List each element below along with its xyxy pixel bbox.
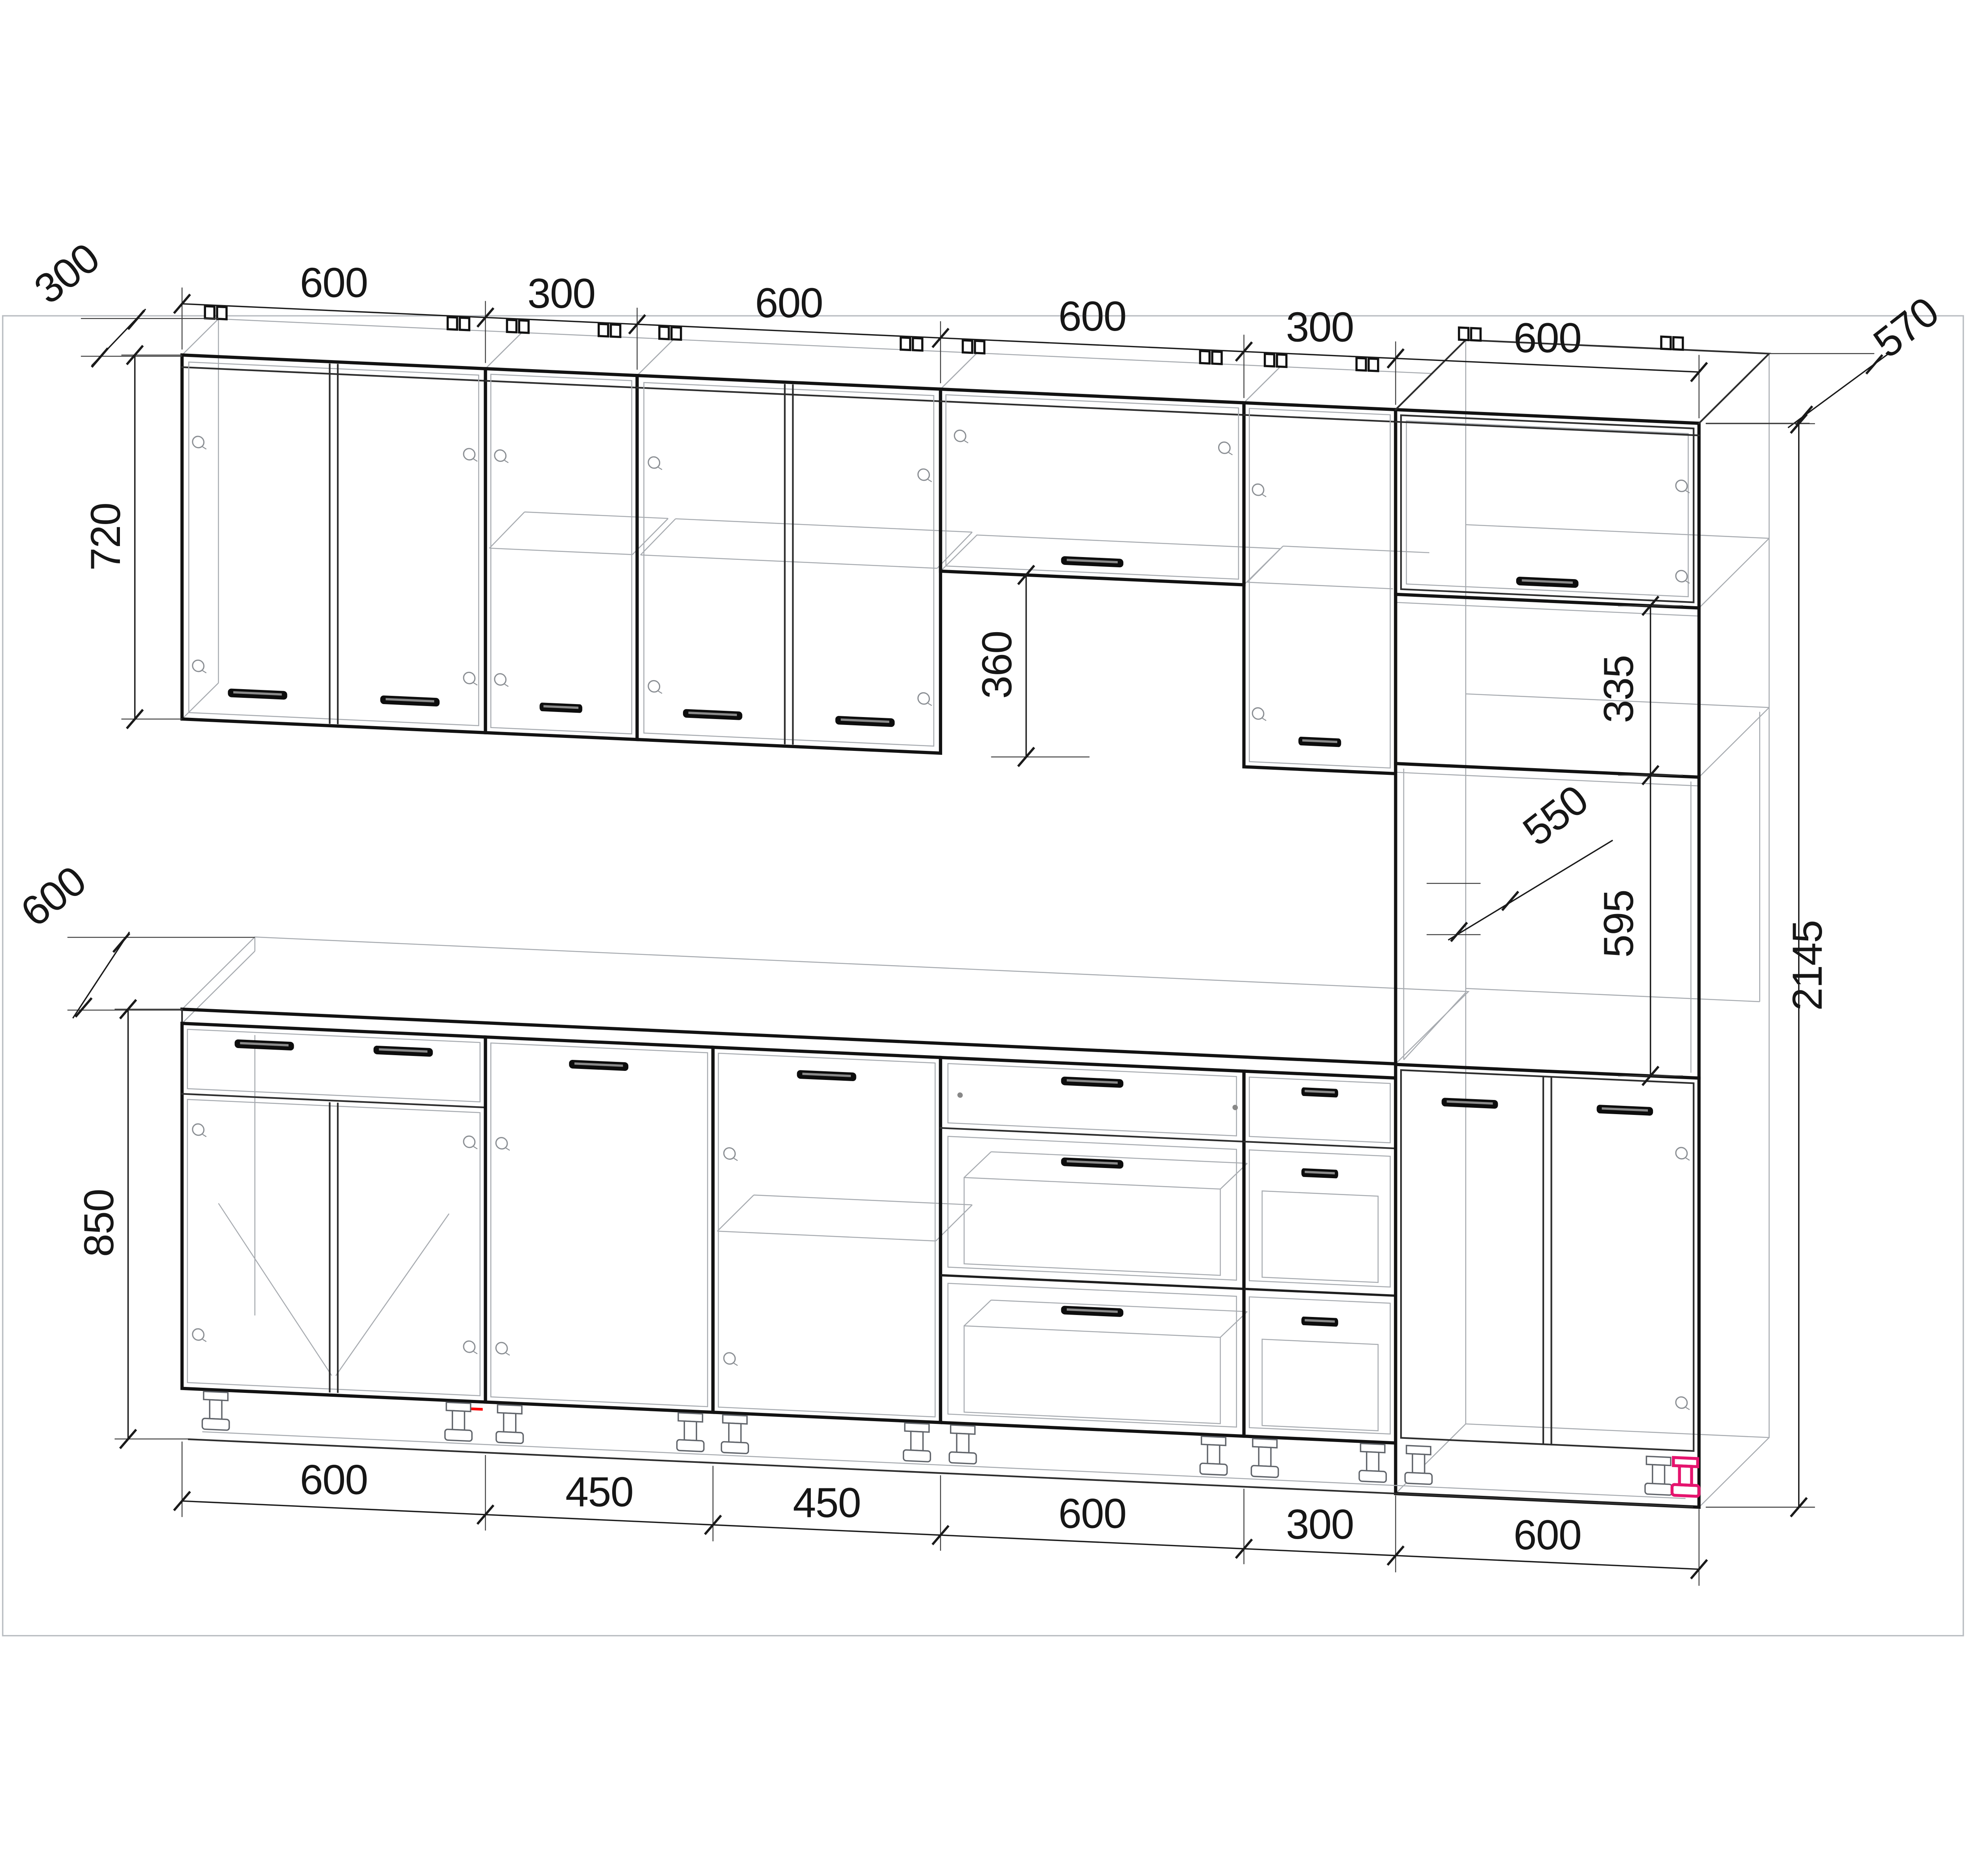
door-handle xyxy=(380,695,440,707)
dim-label-interior-depth: 550 xyxy=(1514,776,1596,855)
dim-label-base-height: 850 xyxy=(75,1189,122,1257)
drawer-handle xyxy=(1301,1317,1338,1327)
hinge-icon xyxy=(1676,570,1690,583)
highlighted-leg xyxy=(1672,1457,1699,1496)
dim-tall-sections: 335 595 xyxy=(1595,596,1683,1085)
door-handle xyxy=(569,1060,628,1071)
hinge-icon xyxy=(918,469,932,482)
dim-hood-gap: 360 xyxy=(974,565,1090,766)
hinge-icon xyxy=(1676,1397,1690,1410)
hinge-icon xyxy=(724,1352,738,1365)
base-cabinet-600-drawers xyxy=(941,1058,1247,1436)
wall-cabinet-600-flipup xyxy=(941,339,1280,587)
flip-door-handle xyxy=(1061,556,1123,567)
base-cabinet-300-drawers xyxy=(1244,1071,1396,1443)
dim-label-counter-depth: 600 xyxy=(12,857,94,936)
hinge-icon xyxy=(495,450,508,463)
dim-label-total-height: 2145 xyxy=(1784,920,1831,1011)
plinth-red-mark xyxy=(471,1409,483,1409)
wall-cabinet-300-2 xyxy=(1244,353,1432,775)
dim-chain-bottom: 600 450 450 600 300 600 xyxy=(174,1442,1707,1586)
hinge-icon xyxy=(1676,480,1690,493)
door-handle xyxy=(1597,1105,1653,1116)
hinge-icon xyxy=(954,430,968,443)
kitchen-cad-drawing: 600 300 600 600 300 600 600 450 450 600 … xyxy=(0,0,1966,1876)
adjustable-leg xyxy=(202,1391,229,1430)
wall-bracket-icon xyxy=(1265,354,1287,367)
hinge-icon xyxy=(496,1342,510,1355)
dim-label-bottom-450b: 450 xyxy=(793,1479,860,1526)
wall-bracket-icon xyxy=(599,324,620,337)
door-handle xyxy=(683,709,742,720)
dim-wall-height: 720 xyxy=(82,346,182,728)
hinge-icon xyxy=(464,448,477,461)
drawer-handle xyxy=(1061,1157,1123,1169)
drawer-handle xyxy=(1061,1076,1123,1088)
door-handle xyxy=(1441,1098,1498,1109)
adjustable-leg xyxy=(1251,1438,1278,1477)
dim-label-wall-depth: 300 xyxy=(26,234,108,313)
hinge-icon xyxy=(724,1148,738,1161)
countertop xyxy=(182,934,1469,1081)
door-handle xyxy=(835,716,895,727)
adjustable-leg xyxy=(677,1413,704,1451)
drawer-handle xyxy=(235,1039,294,1051)
flip-door-handle xyxy=(1516,577,1578,588)
dim-total-height: 2145 xyxy=(1706,414,1831,1517)
adjustable-leg xyxy=(445,1402,472,1441)
adjustable-leg xyxy=(1200,1436,1227,1475)
hinge-icon xyxy=(1252,484,1266,497)
wall-bracket-icon xyxy=(1661,337,1683,349)
hinge-icon xyxy=(193,1329,206,1342)
dim-label-bottom-600a: 600 xyxy=(300,1457,368,1503)
dim-interior-depth: 550 xyxy=(1427,776,1613,941)
dim-label-bottom-450a: 450 xyxy=(565,1468,633,1515)
hinge-icon xyxy=(193,1124,206,1137)
hinge-icon xyxy=(1252,708,1266,721)
adjustable-leg xyxy=(1645,1456,1672,1495)
door-handle xyxy=(1298,737,1341,747)
dim-label-top-300a: 300 xyxy=(527,270,595,317)
hinge-icon xyxy=(193,436,206,449)
dim-label-top-600d: 600 xyxy=(1513,315,1581,361)
hinge-icon xyxy=(1676,1147,1690,1160)
screw-cap-icon xyxy=(957,1092,963,1098)
dim-label-bottom-300: 300 xyxy=(1286,1501,1353,1548)
dim-label-oven-niche: 595 xyxy=(1595,890,1642,958)
base-cabinet-600-sink xyxy=(182,1023,486,1402)
hinge-icon xyxy=(193,660,206,673)
drawer-handle xyxy=(374,1046,433,1057)
dimension-annotations: 600 300 600 600 300 600 600 450 450 600 … xyxy=(12,234,1947,1586)
dim-label-shelf-gap: 335 xyxy=(1595,655,1642,723)
hinge-icon xyxy=(648,681,662,693)
wall-bracket-icon xyxy=(448,317,469,330)
adjustable-leg xyxy=(949,1425,976,1464)
dim-label-top-600a: 600 xyxy=(300,259,368,306)
dim-label-bottom-600b: 600 xyxy=(1058,1490,1126,1537)
hinge-icon xyxy=(648,457,662,470)
dim-label-hood-gap: 360 xyxy=(974,631,1020,699)
dim-label-bottom-600c: 600 xyxy=(1513,1512,1581,1558)
drawer-handle xyxy=(1061,1306,1123,1317)
hinge-icon xyxy=(464,672,477,685)
adjustable-leg xyxy=(1359,1444,1386,1482)
wall-bracket-icon xyxy=(507,320,528,333)
wall-bracket-icon xyxy=(1357,358,1378,371)
wall-cabinet-600-2 xyxy=(637,326,977,755)
plinth-and-legs xyxy=(189,1391,1699,1507)
wall-bracket-icon xyxy=(659,327,681,340)
dim-label-top-300b: 300 xyxy=(1286,304,1353,351)
wall-bracket-icon xyxy=(963,340,985,353)
hinge-icon xyxy=(464,1136,477,1149)
adjustable-leg xyxy=(1405,1446,1432,1484)
dim-label-wall-height: 720 xyxy=(82,503,129,571)
drawing-sheet: 600 300 600 600 300 600 600 450 450 600 … xyxy=(0,0,1966,1876)
hinge-icon xyxy=(496,1137,510,1150)
door-handle xyxy=(228,688,287,700)
hinge-icon xyxy=(1219,442,1232,455)
hinge-icon xyxy=(464,1341,477,1354)
adjustable-leg xyxy=(722,1415,749,1454)
adjustable-leg xyxy=(496,1405,523,1444)
wall-bracket-icon xyxy=(205,306,226,319)
screw-cap-icon xyxy=(1232,1105,1238,1110)
adjustable-leg xyxy=(904,1423,931,1462)
dim-tall-depth: 570 xyxy=(1706,288,1947,428)
wall-bracket-icon xyxy=(1459,327,1481,340)
dim-label-top-600c: 600 xyxy=(1058,293,1126,340)
wall-cabinet-600-1 xyxy=(182,305,522,734)
dim-label-tall-depth: 570 xyxy=(1865,288,1947,367)
base-cabinet-450-2 xyxy=(713,1047,972,1424)
wall-bracket-icon xyxy=(1200,351,1222,364)
wall-bracket-icon xyxy=(901,337,922,350)
hinge-icon xyxy=(918,693,932,706)
dim-label-top-600b: 600 xyxy=(755,280,823,326)
sheet-frame xyxy=(3,316,1963,1635)
hinge-icon xyxy=(495,673,508,686)
door-handle xyxy=(539,703,582,713)
tall-cabinet-column xyxy=(1395,325,1769,1510)
dim-counter-depth: 600 xyxy=(12,857,255,1018)
drawer-handle xyxy=(1301,1168,1338,1178)
door-handle xyxy=(797,1070,856,1081)
drawer-handle xyxy=(1301,1087,1338,1098)
dim-base-height: 850 xyxy=(75,1000,189,1448)
base-cabinet-450-1 xyxy=(471,1036,713,1420)
